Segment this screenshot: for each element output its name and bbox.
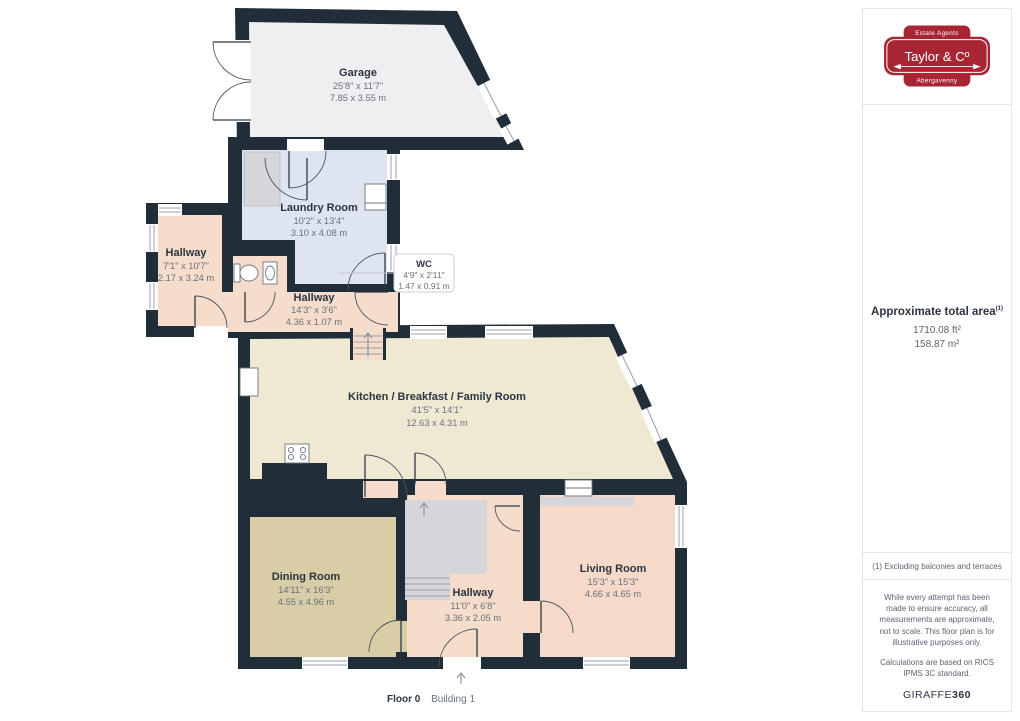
- svg-text:14'11" x 16'3": 14'11" x 16'3": [278, 585, 333, 595]
- window: [146, 224, 158, 252]
- logo-name: Taylor & Cº: [905, 49, 970, 64]
- entrance-opening: [443, 657, 481, 669]
- svg-text:3.36 x 2.05 m: 3.36 x 2.05 m: [445, 613, 502, 623]
- living-ledge: [540, 497, 634, 506]
- svg-text:2.17 x 3.24 m: 2.17 x 3.24 m: [158, 273, 215, 283]
- svg-text:Dining Room: Dining Room: [272, 571, 341, 583]
- total-area-section: Approximate total area(1) 1710.08 ft² 15…: [863, 105, 1011, 554]
- svg-text:41'5" x 14'1": 41'5" x 14'1": [412, 405, 463, 415]
- fireplace: [240, 368, 258, 396]
- garage-laundry-opening: [287, 139, 324, 151]
- svg-text:12.63 x 4.31 m: 12.63 x 4.31 m: [406, 418, 468, 428]
- stairs-upper: [350, 328, 386, 360]
- svg-text:7'1" x 10'7": 7'1" x 10'7": [163, 261, 209, 271]
- window: [158, 204, 182, 216]
- svg-text:Hallway: Hallway: [453, 587, 495, 599]
- room-label-dining: Dining Room 14'11" x 16'3" 4.55 x 4.96 m: [272, 571, 341, 607]
- info-sidebar: Estate Agents Taylor & Cº Abergavenny Ap…: [862, 8, 1012, 712]
- room-label-hallway-mid: Hallway 14'3" x 3'6" 4.36 x 1.07 m: [286, 292, 343, 327]
- toilet-tank: [234, 264, 240, 282]
- living-door-opening: [523, 601, 540, 633]
- window: [146, 282, 158, 310]
- svg-text:4.66 x 4.65 m: 4.66 x 4.65 m: [585, 589, 642, 599]
- agency-logo: Estate Agents Taylor & Cº Abergavenny: [863, 9, 1011, 105]
- kitchen-hall-opening-1: [363, 481, 398, 498]
- window: [410, 326, 447, 339]
- total-area-title: Approximate total area(1): [871, 306, 1003, 318]
- hallway-exterior-opening: [194, 326, 228, 338]
- total-area-metric: 158.87 m²: [914, 338, 959, 352]
- svg-text:Kitchen / Breakfast / Family R: Kitchen / Breakfast / Family Room: [348, 391, 526, 403]
- room-wc-metric: 1.47 x 0.91 m: [398, 281, 450, 291]
- logo-tagline-top: Estate Agents: [915, 30, 959, 37]
- footnote-marker: (1): [996, 306, 1003, 312]
- disclaimer-standard: Calculations are based on RICS IPMS 3C s…: [874, 657, 1000, 679]
- toilet-bowl: [240, 265, 258, 281]
- kitchen-hall-opening-2: [415, 481, 446, 498]
- room-label-hallway-left: Hallway 7'1" x 10'7" 2.17 x 3.24 m: [158, 247, 215, 283]
- svg-text:7.85 x 3.55 m: 7.85 x 3.55 m: [330, 93, 387, 103]
- window: [675, 505, 687, 548]
- stove: [285, 444, 309, 463]
- laundry-storage: [244, 152, 280, 206]
- kitchen-wall-chunk: [262, 463, 327, 480]
- window: [302, 657, 348, 669]
- room-wc-name: WC: [416, 259, 432, 270]
- giraffe360-brand: GIRAFFE360: [874, 688, 1000, 703]
- svg-text:Hallway: Hallway: [294, 292, 336, 304]
- svg-text:25'8" x 11'7": 25'8" x 11'7": [333, 81, 383, 91]
- window: [387, 154, 401, 180]
- svg-text:3.10 x 4.08 m: 3.10 x 4.08 m: [291, 228, 348, 238]
- svg-text:Garage: Garage: [339, 67, 377, 79]
- svg-text:Living Room: Living Room: [580, 563, 647, 575]
- footnote-text: (1) Excluding balconies and terraces: [863, 553, 1011, 580]
- floor-label: Floor 0: [387, 694, 420, 705]
- window: [583, 657, 630, 669]
- svg-text:Laundry Room: Laundry Room: [280, 202, 358, 214]
- room-wc-imperial: 4'9" x 2'11": [403, 270, 444, 280]
- svg-text:15'3" x 15'3": 15'3" x 15'3": [588, 577, 639, 587]
- svg-text:14'3" x 3'6": 14'3" x 3'6": [291, 305, 337, 315]
- taylor-co-logo-icon: Estate Agents Taylor & Cº Abergavenny: [884, 24, 990, 88]
- disclaimer-section: While every attempt has been made to ens…: [863, 580, 1011, 711]
- room-living-floor: [540, 495, 675, 657]
- room-label-living: Living Room 15'3" x 15'3" 4.66 x 4.65 m: [580, 563, 647, 599]
- floor-caption: Floor 0 Building 1: [0, 694, 862, 705]
- building-label: Building 1: [431, 694, 475, 705]
- room-label-hallway-bottom: Hallway 11'0" x 6'8" 3.36 x 2.05 m: [445, 587, 502, 623]
- logo-tagline-bottom: Abergavenny: [916, 78, 958, 85]
- svg-text:4.55 x 4.96 m: 4.55 x 4.96 m: [278, 597, 335, 607]
- window: [485, 326, 533, 339]
- svg-text:11'0" x 6'8": 11'0" x 6'8": [450, 601, 495, 611]
- total-area-imperial: 1710.08 ft²: [913, 324, 961, 338]
- svg-text:4.36 x 1.07 m: 4.36 x 1.07 m: [286, 317, 343, 327]
- svg-text:10'2" x 13'4": 10'2" x 13'4": [294, 216, 345, 226]
- svg-text:Hallway: Hallway: [166, 247, 208, 259]
- disclaimer-accuracy: While every attempt has been made to ens…: [874, 592, 1000, 648]
- garage-door-opening: [233, 40, 251, 122]
- entrance-arrow: [457, 673, 465, 684]
- meter-box: [365, 184, 386, 210]
